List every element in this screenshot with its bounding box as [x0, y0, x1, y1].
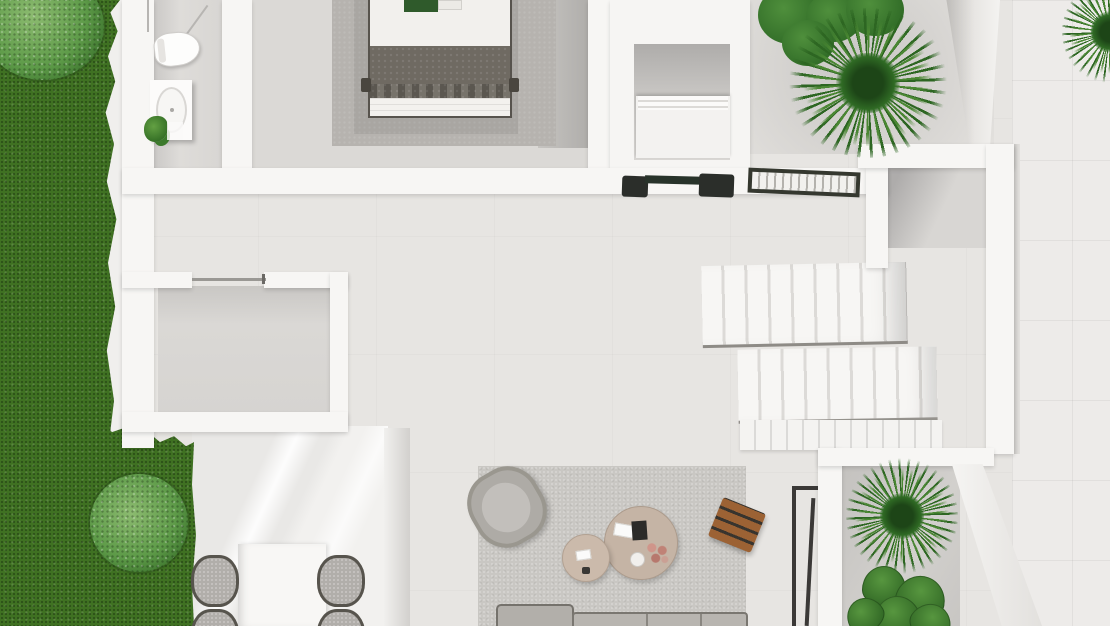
cooktop-right — [699, 173, 735, 197]
stair-riser-band — [740, 420, 942, 450]
dining-chair — [320, 558, 362, 604]
interior-room-east-wall — [330, 272, 348, 428]
door-handle — [262, 274, 265, 284]
stairwell-east-wall — [986, 144, 1014, 454]
sliding-glass-door — [192, 278, 266, 281]
glass-door-frame — [792, 486, 796, 626]
flower-arrangement — [644, 540, 670, 566]
bed-side-handle-left — [361, 78, 371, 92]
interior-room-top-wall-left — [122, 272, 192, 288]
green-pillow — [404, 0, 438, 12]
terrace-palm-plant — [788, 8, 948, 158]
sink-grate — [748, 168, 861, 198]
patio-east-wall — [384, 428, 410, 626]
vase — [630, 552, 645, 567]
basin-drain — [170, 108, 174, 112]
bed-folded-sheet — [370, 98, 510, 116]
courtyard-west-wall — [818, 448, 842, 626]
courtyard-palm-plant — [846, 458, 958, 574]
white-pillow — [438, 0, 462, 10]
interior-room-bottom-wall — [122, 412, 348, 432]
dining-table — [238, 544, 326, 626]
linen-shelf — [636, 96, 730, 158]
book-small — [575, 549, 591, 561]
stair-landing-floor — [886, 166, 988, 248]
sofa-chaise — [496, 604, 574, 626]
terrace-right — [1012, 0, 1110, 626]
stairs-upper-flight — [701, 262, 908, 348]
floorplan-scene — [0, 0, 1110, 626]
sofa-back — [572, 612, 748, 626]
stairs-lower-flight — [737, 346, 937, 423]
bed-blanket — [370, 46, 510, 98]
west-wall — [122, 0, 154, 448]
sofa-cushion-seam — [700, 614, 702, 626]
bathroom-bedroom-wall — [222, 0, 252, 180]
bathroom-accessories — [167, 122, 183, 140]
shower-glass-panel — [147, 0, 149, 32]
glass-door-frame — [792, 486, 818, 490]
bed-side-handle-right — [509, 78, 519, 92]
kitchen-east-wall — [866, 168, 888, 268]
round-bush — [90, 474, 188, 572]
counter-dark-strip — [645, 175, 703, 185]
table-accessory — [582, 567, 590, 574]
dining-chair — [194, 558, 236, 604]
sofa-cushion-seam — [646, 614, 648, 626]
book-black — [631, 520, 647, 540]
interior-room-floor — [158, 286, 334, 414]
